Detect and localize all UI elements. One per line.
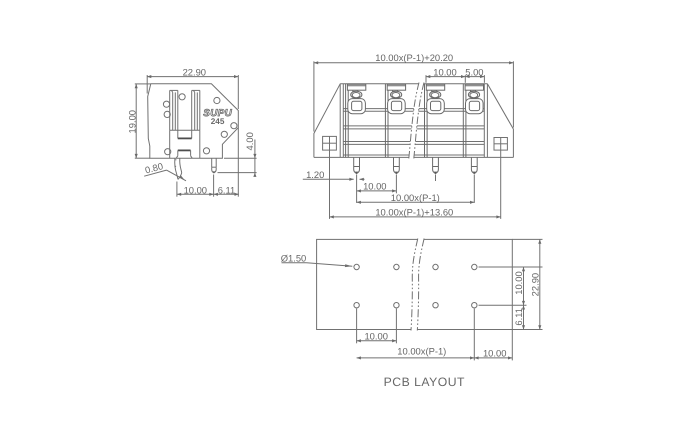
svg-text:10.00: 10.00	[363, 181, 386, 192]
svg-text:245: 245	[211, 117, 225, 126]
svg-text:6.11: 6.11	[218, 184, 236, 195]
svg-text:19.00: 19.00	[127, 110, 138, 133]
svg-text:10.00x(P-1): 10.00x(P-1)	[391, 192, 440, 203]
svg-text:PCB LAYOUT: PCB LAYOUT	[384, 375, 465, 389]
svg-text:5.00: 5.00	[465, 67, 483, 78]
svg-text:10.00: 10.00	[433, 67, 456, 78]
svg-text:1.20: 1.20	[306, 169, 324, 180]
svg-text:22.90: 22.90	[530, 273, 541, 296]
svg-text:10.00x(P-1)+20.20: 10.00x(P-1)+20.20	[375, 52, 453, 63]
svg-text:10.00: 10.00	[513, 271, 524, 294]
svg-text:10.00x(P-1)+13.60: 10.00x(P-1)+13.60	[375, 207, 453, 218]
svg-text:22.90: 22.90	[183, 67, 206, 78]
svg-text:10.00: 10.00	[184, 184, 207, 195]
svg-text:10.00: 10.00	[364, 331, 387, 342]
svg-text:10.00x(P-1): 10.00x(P-1)	[397, 346, 446, 357]
svg-text:4.00: 4.00	[244, 132, 255, 150]
svg-text:Ø1.50: Ø1.50	[281, 252, 307, 263]
svg-text:10.00: 10.00	[483, 347, 506, 358]
svg-text:6.11: 6.11	[513, 308, 524, 326]
